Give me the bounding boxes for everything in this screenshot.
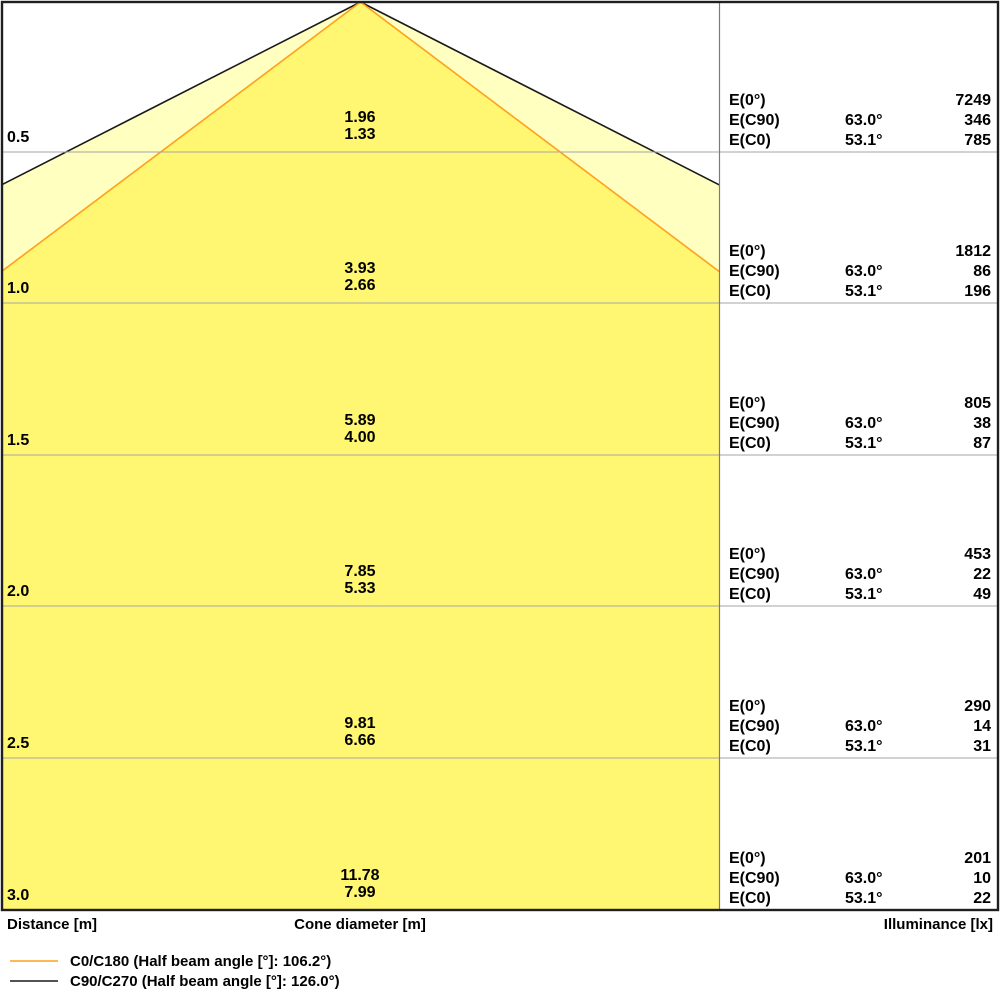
cone-diameter-c0-value: 7.99 — [260, 884, 460, 901]
ec0-label: E(C0) — [729, 586, 771, 604]
ec90-angle: 63.0° — [845, 566, 883, 584]
e0-label: E(0°) — [729, 698, 766, 716]
ec0-label: E(C0) — [729, 738, 771, 756]
distance-label: 1.0 — [7, 280, 29, 298]
e0-label: E(0°) — [729, 243, 766, 261]
ec0-label: E(C0) — [729, 283, 771, 301]
legend-label-c90: C90/C270 (Half beam angle [°]: 126.0°) — [70, 973, 340, 990]
legend-swatches — [10, 961, 58, 981]
ec0-label: E(C0) — [729, 132, 771, 150]
e0-value: 290 — [880, 698, 991, 716]
ec0-angle: 53.1° — [845, 738, 883, 756]
ec0-angle: 53.1° — [845, 586, 883, 604]
legend-label-c0: C0/C180 (Half beam angle [°]: 106.2°) — [70, 953, 331, 970]
e0-label: E(0°) — [729, 850, 766, 868]
ec0-angle: 53.1° — [845, 283, 883, 301]
ec0-value: 196 — [880, 283, 991, 301]
ec90-angle: 63.0° — [845, 112, 883, 130]
cone-diameter-c0-value: 4.00 — [260, 429, 460, 446]
ec0-value: 22 — [880, 890, 991, 908]
ec0-value: 87 — [880, 435, 991, 453]
e0-value: 805 — [880, 395, 991, 413]
distance-label: 0.5 — [7, 129, 29, 147]
ec0-value: 31 — [880, 738, 991, 756]
ec0-label: E(C0) — [729, 435, 771, 453]
table-row: 3.0 11.78 7.99 E(0°) 201 E(C90) 63.0° 10… — [0, 840, 1000, 910]
ec90-value: 14 — [880, 718, 991, 736]
cone-diameter-c0-value: 6.66 — [260, 732, 460, 749]
table-row: 2.5 9.81 6.66 E(0°) 290 E(C90) 63.0° 14 … — [0, 688, 1000, 758]
ec90-angle: 63.0° — [845, 415, 883, 433]
ec90-label: E(C90) — [729, 870, 780, 888]
cone-diameter-c0-value: 5.33 — [260, 580, 460, 597]
cone-diagram-page: 0.5 1.96 1.33 E(0°) 7249 E(C90) 63.0° 34… — [0, 0, 1000, 1000]
cone-diameter-c90-value: 11.78 — [260, 867, 460, 884]
e0-value: 7249 — [880, 92, 991, 110]
ec90-label: E(C90) — [729, 415, 780, 433]
distance-label: 1.5 — [7, 432, 29, 450]
cone-diameter-c90-value: 5.89 — [260, 412, 460, 429]
ec90-value: 10 — [880, 870, 991, 888]
ec0-value: 49 — [880, 586, 991, 604]
ec0-label: E(C0) — [729, 890, 771, 908]
ec0-angle: 53.1° — [845, 890, 883, 908]
e0-value: 201 — [880, 850, 991, 868]
ec90-label: E(C90) — [729, 566, 780, 584]
ec0-angle: 53.1° — [845, 435, 883, 453]
ec90-label: E(C90) — [729, 718, 780, 736]
cone-diameter-c90-value: 1.96 — [260, 109, 460, 126]
e0-value: 1812 — [880, 243, 991, 261]
axis-label-cone-diameter: Cone diameter [m] — [260, 916, 460, 934]
distance-label: 2.5 — [7, 735, 29, 753]
table-row: 1.5 5.89 4.00 E(0°) 805 E(C90) 63.0° 38 … — [0, 385, 1000, 455]
distance-label: 3.0 — [7, 887, 29, 905]
cone-diameter-c90-value: 7.85 — [260, 563, 460, 580]
e0-label: E(0°) — [729, 92, 766, 110]
table-row: 2.0 7.85 5.33 E(0°) 453 E(C90) 63.0° 22 … — [0, 536, 1000, 606]
ec90-label: E(C90) — [729, 263, 780, 281]
ec0-angle: 53.1° — [845, 132, 883, 150]
cone-diameter-c90-value: 3.93 — [260, 260, 460, 277]
ec90-value: 346 — [880, 112, 991, 130]
table-row: 1.0 3.93 2.66 E(0°) 1812 E(C90) 63.0° 86… — [0, 233, 1000, 303]
distance-label: 2.0 — [7, 583, 29, 601]
ec90-value: 22 — [880, 566, 991, 584]
ec90-angle: 63.0° — [845, 718, 883, 736]
e0-value: 453 — [880, 546, 991, 564]
ec90-label: E(C90) — [729, 112, 780, 130]
ec0-value: 785 — [880, 132, 991, 150]
ec90-value: 86 — [880, 263, 991, 281]
ec90-angle: 63.0° — [845, 263, 883, 281]
table-row: 0.5 1.96 1.33 E(0°) 7249 E(C90) 63.0° 34… — [0, 82, 1000, 152]
cone-diameter-c90-value: 9.81 — [260, 715, 460, 732]
e0-label: E(0°) — [729, 546, 766, 564]
cone-diameter-c0-value: 2.66 — [260, 277, 460, 294]
axis-label-illuminance: Illuminance [lx] — [793, 916, 993, 934]
ec90-angle: 63.0° — [845, 870, 883, 888]
ec90-value: 38 — [880, 415, 991, 433]
e0-label: E(0°) — [729, 395, 766, 413]
cone-diameter-c0-value: 1.33 — [260, 126, 460, 143]
axis-label-distance: Distance [m] — [7, 916, 97, 934]
